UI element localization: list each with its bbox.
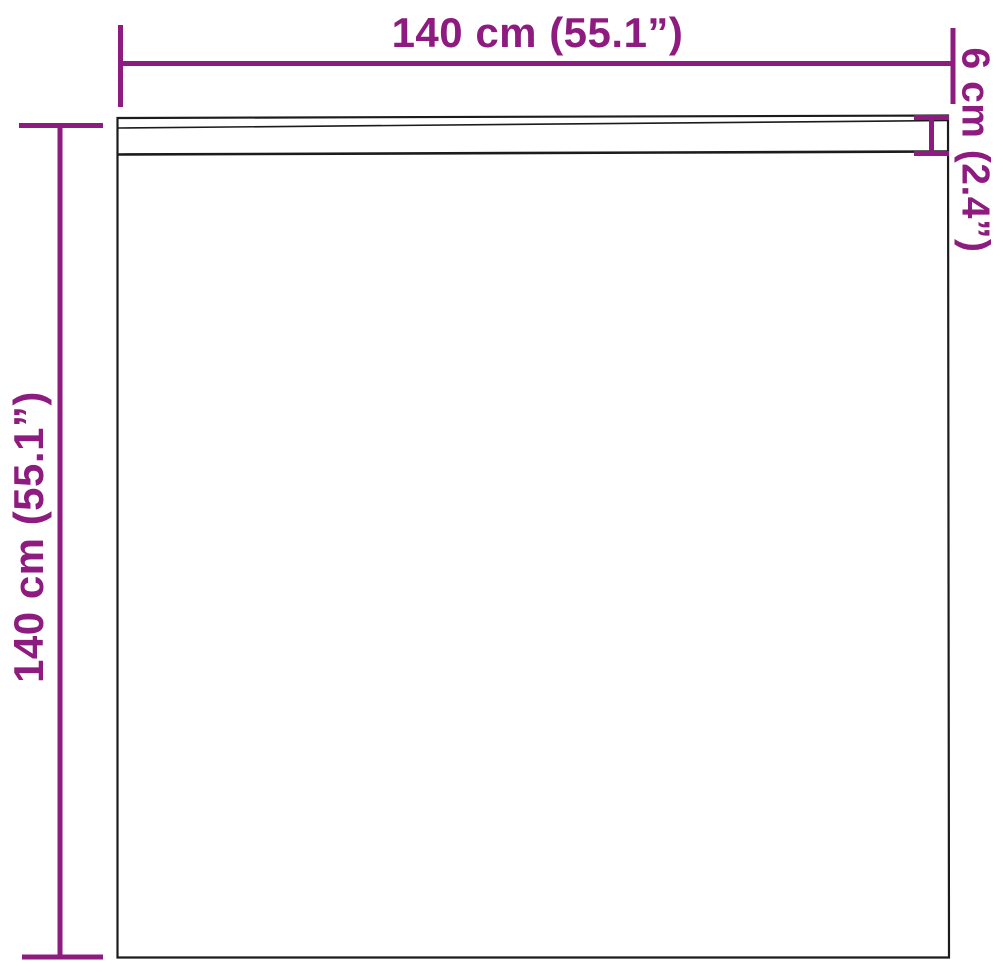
header-band-line	[118, 152, 947, 155]
curtain-panel-outline	[118, 116, 950, 958]
width-dimension-label: 140 cm (55.1”)	[122, 12, 953, 54]
header-fold-line	[118, 121, 947, 129]
dimension-diagram: 140 cm (55.1”) 140 cm (55.1”) 6 cm (2.4”…	[0, 0, 1003, 972]
header-dimension-label: 6 cm (2.4”)	[956, 48, 995, 253]
diagram-canvas	[0, 0, 1003, 972]
height-dimension-label: 140 cm (55.1”)	[8, 391, 50, 683]
